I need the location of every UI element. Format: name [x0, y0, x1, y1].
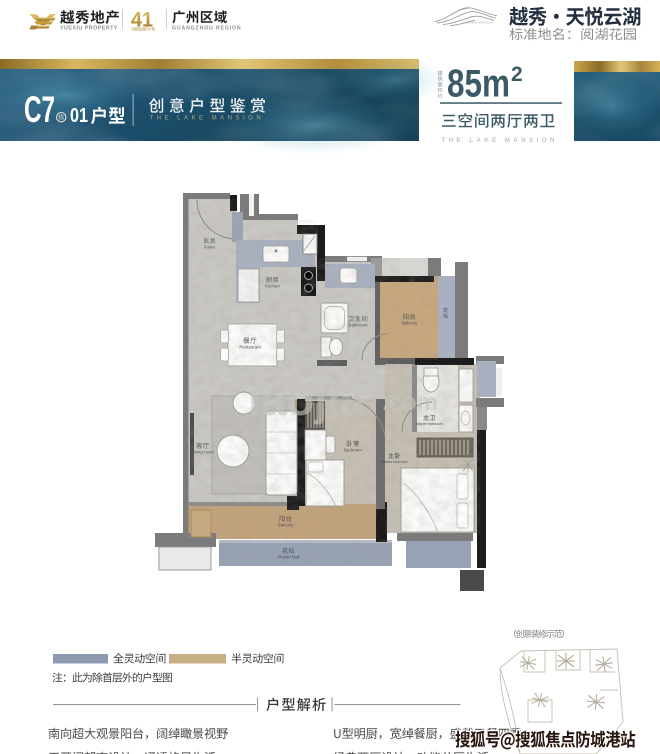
svg-text:GUANGZHOU REGION: GUANGZHOU REGION: [172, 26, 242, 32]
svg-text:YUEXIU PROPERTY: YUEXIU PROPERTY: [60, 26, 118, 32]
svg-text:01: 01: [70, 105, 88, 127]
svg-text:2: 2: [511, 63, 523, 86]
svg-text:C7: C7: [24, 89, 55, 130]
svg-text:THE LAKE MANSION: THE LAKE MANSION: [150, 116, 265, 122]
svg-text:THE LAKE MANSION: THE LAKE MANSION: [462, 21, 494, 25]
svg-text:THE LAKE MANSION: THE LAKE MANSION: [442, 137, 558, 144]
svg-text:85m: 85m: [447, 63, 510, 106]
